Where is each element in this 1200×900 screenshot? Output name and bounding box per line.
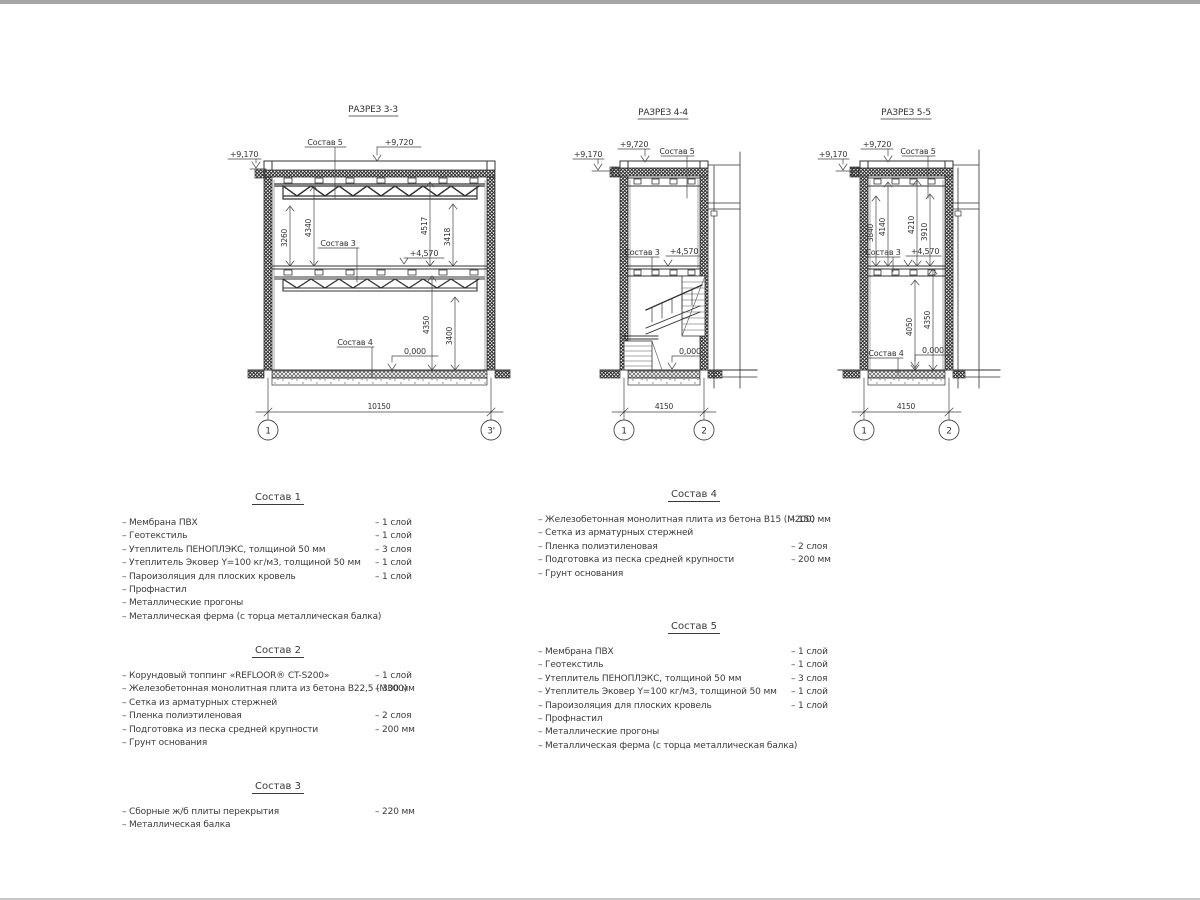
level-label: +9,170 (574, 150, 603, 159)
level-label: 0,000 (922, 346, 944, 355)
spec-item-name: – Железобетонная монолитная плита из бет… (538, 515, 815, 525)
roof-truss-chords (275, 184, 484, 199)
spec-items: – Корундовый топпинг «REFLOOR® CT-S200»–… (122, 671, 434, 751)
spec-item-row: – Металлическая балка (122, 820, 434, 833)
level-label: 0,000 (404, 347, 426, 356)
mid-floor-plates (874, 270, 935, 275)
stair-lower-flight (624, 341, 652, 370)
dim-label: 3260 (280, 228, 289, 247)
mid-truss-diagonals (283, 279, 479, 288)
composition-label: Состав 3 (865, 248, 900, 257)
dim-label: 4050 (905, 317, 914, 336)
spec-item-name: – Утеплитель ПЕНОПЛЭКС, толщиной 50 мм (122, 545, 325, 555)
spec-item-row: – Грунт основания (122, 738, 434, 751)
level-label: +9,720 (385, 138, 414, 147)
spec-item-row: – Профнастил (122, 585, 434, 598)
spec-item-name: – Металлическая ферма (с торца металличе… (122, 612, 381, 622)
spec-item-name: – Корундовый топпинг «REFLOOR® CT-S200» (122, 671, 329, 681)
spec-item-row: – Пленка полиэтиленовая– 2 слоя (122, 711, 434, 724)
roof-purlins (634, 179, 695, 184)
spec-item-name: – Пленка полиэтиленовая (538, 542, 658, 552)
floor-slab-band (272, 371, 487, 378)
spec-item-row: – Сборные ж/б плиты перекрытия– 220 мм (122, 807, 434, 820)
spec-item-row: – Утеплитель Эковер Y=100 кг/м3, толщино… (538, 687, 850, 700)
spec-item-value: – 300 мм (375, 684, 415, 694)
spec-item-row: – Профнастил (538, 714, 850, 727)
spec-item-row: – Пароизоляция для плоских кровель– 1 сл… (538, 701, 850, 714)
span-dim-label: 4150 (655, 402, 674, 411)
spec-item-name: – Железобетонная монолитная плита из бет… (122, 684, 407, 694)
spec-item-name: – Металлические прогоны (122, 598, 243, 608)
spec-block-sostav-5: Состав 5 – Мембрана ПВХ– 1 слой– Геотекс… (538, 621, 850, 754)
spec-items: – Мембрана ПВХ– 1 слой– Геотекстиль– 1 с… (538, 647, 850, 754)
spec-item-row: – Мембрана ПВХ– 1 слой (538, 647, 850, 660)
spec-item-value: – 3 слоя (791, 674, 827, 684)
parapet-lines (860, 161, 953, 168)
spec-item-name: – Грунт основания (538, 569, 623, 579)
spec-item-name: – Профнастил (122, 585, 186, 595)
spec-item-row: – Грунт основания (538, 569, 850, 582)
wall-right (487, 177, 495, 370)
mid-truss-chords (275, 277, 484, 291)
spec-item-name: – Утеплитель ПЕНОПЛЭКС, толщиной 50 мм (538, 674, 741, 684)
dim-label: 4140 (878, 217, 887, 236)
spec-item-value: – 1 слой (375, 558, 412, 568)
spec-item-row: – Утеплитель ПЕНОПЛЭКС, толщиной 50 мм– … (122, 545, 434, 558)
spec-title: Состав 2 (122, 645, 434, 657)
mid-floor-plates (284, 270, 478, 275)
spec-items: – Мембрана ПВХ– 1 слой– Геотекстиль– 1 с… (122, 518, 434, 625)
footing-stub-left (248, 371, 264, 378)
adjacent-structure (708, 152, 740, 388)
composition-label: Состав 4 (337, 338, 372, 347)
spec-item-row: – Мембрана ПВХ– 1 слой (122, 518, 434, 531)
spec-item-name: – Геотекстиль (122, 531, 187, 541)
spec-item-value: – 1 слой (791, 660, 828, 670)
dim-label: 4340 (304, 218, 313, 237)
wall-left (264, 177, 272, 370)
spec-item-name: – Металлическая ферма (с торца металличе… (538, 741, 797, 751)
level-label: +4,570 (670, 247, 699, 256)
adjacent-bracket (955, 211, 961, 216)
roof-band (264, 170, 495, 177)
spec-item-row: – Подготовка из песка средней крупности–… (538, 555, 850, 568)
dim-label: 3400 (445, 326, 454, 345)
footing-stub-left (843, 371, 860, 378)
sections-drawing: РАЗРЕЗ 3-3 3260 4340 4517 3418 (0, 0, 1200, 900)
footing-stub-right (495, 371, 510, 378)
spec-block-sostav-4: Состав 4 – Железобетонная монолитная пли… (538, 489, 850, 582)
composition-label: Состав 5 (900, 147, 935, 156)
spec-item-value: – 1 слой (791, 687, 828, 697)
spec-item-row: – Геотекстиль– 1 слой (122, 531, 434, 544)
spec-item-row: – Металлическая ферма (с торца металличе… (122, 612, 434, 625)
parapet-lines (620, 161, 708, 168)
spec-item-row: – Пароизоляция для плоских кровель– 1 сл… (122, 572, 434, 585)
level-label: +4,570 (410, 249, 439, 258)
wall-left (860, 176, 868, 370)
spec-items: – Железобетонная монолитная плита из бет… (538, 515, 850, 582)
composition-label: Состав 3 (320, 239, 355, 248)
spec-item-value: – 1 слой (375, 518, 412, 528)
spec-item-row: – Пленка полиэтиленовая– 2 слоя (538, 542, 850, 555)
wall-right (945, 176, 953, 370)
spec-item-value: – 2 слоя (375, 711, 411, 721)
spec-item-name: – Профнастил (538, 714, 602, 724)
axis-label: 2 (701, 427, 707, 437)
dim-label: 4517 (420, 216, 429, 235)
spec-item-name: – Подготовка из песка средней крупности (122, 725, 318, 735)
spec-item-value: – 220 мм (375, 807, 415, 817)
level-label: +4,570 (911, 247, 940, 256)
sand-bed-band (628, 378, 700, 385)
spec-item-name: – Сборные ж/б плиты перекрытия (122, 807, 279, 817)
spec-block-sostav-3: Состав 3 – Сборные ж/б плиты перекрытия–… (122, 781, 434, 834)
spec-title: Состав 4 (538, 489, 850, 501)
spec-item-row: – Утеплитель Эковер Y=100 кг/м3, толщино… (122, 558, 434, 571)
spec-item-name: – Пароизоляция для плоских кровель (538, 701, 712, 711)
dim-label: 4350 (422, 315, 431, 334)
spec-item-name: – Сетка из арматурных стержней (122, 698, 277, 708)
spec-item-row: – Корундовый топпинг «REFLOOR® CT-S200»–… (122, 671, 434, 684)
spec-item-row: – Металлические прогоны (122, 598, 434, 611)
spec-item-value: – 1 слой (375, 671, 412, 681)
spec-item-name: – Утеплитель Эковер Y=100 кг/м3, толщино… (122, 558, 361, 568)
spec-item-name: – Геотекстиль (538, 660, 603, 670)
spec-item-value: – 2 слоя (791, 542, 827, 552)
spec-title: Состав 5 (538, 621, 850, 633)
spec-item-row: – Железобетонная монолитная плита из бет… (122, 684, 434, 697)
spec-item-row: – Сетка из арматурных стержней (538, 528, 850, 541)
parapet-lines (264, 161, 495, 170)
spec-item-value: – 1 слой (375, 531, 412, 541)
dim-label: 4350 (923, 310, 932, 329)
dim-label: 3840 (866, 223, 875, 242)
spec-items: – Сборные ж/б плиты перекрытия– 220 мм– … (122, 807, 434, 834)
adjacent-structure (953, 150, 979, 388)
spec-item-value: – 200 мм (375, 725, 415, 735)
sand-bed-band (868, 378, 945, 385)
axis-label: 1 (621, 427, 627, 437)
axis-label: 1 (265, 427, 271, 437)
composition-label: Состав 4 (868, 349, 903, 358)
spec-item-value: – 1 слой (791, 701, 828, 711)
spec-item-value: – 3 слоя (375, 545, 411, 555)
section-3-3: РАЗРЕЗ 3-3 3260 4340 4517 3418 (228, 105, 510, 440)
axis-label: 1 (861, 427, 867, 437)
section-5-5: РАЗРЕЗ 5-5 3840 4140 4210 3910 4050 4350 (818, 108, 1000, 440)
section-4-4: РАЗРЕЗ 4-4 +9,170 +9, (573, 108, 757, 440)
level-label: 0,000 (679, 347, 701, 356)
dim-label: 4210 (907, 215, 916, 234)
footing-stub-right (953, 371, 965, 378)
spec-item-name: – Утеплитель Эковер Y=100 кг/м3, толщино… (538, 687, 777, 697)
footing-stub-right (708, 371, 722, 378)
level-label: +9,170 (819, 150, 848, 159)
spec-item-value: – 1 слой (791, 647, 828, 657)
mid-floor-slab-lines (272, 266, 487, 269)
dim-label: 3418 (443, 227, 452, 246)
footing-stub-left (600, 371, 620, 378)
spec-title: Состав 3 (122, 781, 434, 793)
sand-bed-band (272, 378, 487, 385)
axis-label: 2 (946, 427, 952, 437)
spec-item-row: – Подготовка из песка средней крупности–… (122, 725, 434, 738)
spec-block-sostav-2: Состав 2 – Корундовый топпинг «REFLOOR® … (122, 645, 434, 751)
roof-purlins (284, 178, 478, 183)
spec-block-sostav-1: Состав 1 – Мембрана ПВХ– 1 слой– Геотекс… (122, 492, 434, 625)
spec-item-name: – Металлические прогоны (538, 727, 659, 737)
spec-item-name: – Грунт основания (122, 738, 207, 748)
drawing-sheet: РАЗРЕЗ 3-3 3260 4340 4517 3418 (0, 0, 1200, 900)
spec-item-name: – Мембрана ПВХ (538, 647, 614, 657)
floor-slab-band (868, 371, 945, 378)
spec-item-name: – Металлическая балка (122, 820, 230, 830)
spec-item-value: – 200 мм (791, 555, 831, 565)
section-title: РАЗРЕЗ 5-5 (881, 108, 931, 118)
spec-item-row: – Геотекстиль– 1 слой (538, 660, 850, 673)
roof-band (612, 168, 708, 176)
spec-item-name: – Мембрана ПВХ (122, 518, 198, 528)
level-label: +9,170 (230, 150, 259, 159)
span-dim-label: 10150 (368, 402, 391, 411)
composition-label: Состав 3 (624, 248, 659, 257)
span-dim-label: 4150 (897, 402, 916, 411)
spec-item-row: – Сетка из арматурных стержней (122, 698, 434, 711)
section-title: РАЗРЕЗ 4-4 (638, 108, 688, 118)
roof-band (852, 168, 953, 176)
composition-label: Состав 5 (307, 138, 342, 147)
axis-label: 3' (487, 427, 495, 437)
spec-item-row: – Металлическая ферма (с торца металличе… (538, 741, 850, 754)
adjacent-bracket (711, 211, 717, 216)
dim-label: 3910 (920, 222, 929, 241)
spec-item-name: – Сетка из арматурных стержней (538, 528, 693, 538)
spec-item-value: – 1 слой (375, 572, 412, 582)
spec-title: Состав 1 (122, 492, 434, 504)
spec-item-name: – Подготовка из песка средней крупности (538, 555, 734, 565)
level-label: +9,720 (620, 140, 649, 149)
spec-item-row: – Железобетонная монолитная плита из бет… (538, 515, 850, 528)
mid-floor-plates (634, 270, 695, 275)
roof-purlins (874, 179, 935, 184)
roof-cornice-cap (255, 169, 265, 178)
spec-item-value: – 150 мм (791, 515, 831, 525)
wall-right (700, 176, 708, 370)
spec-item-row: – Металлические прогоны (538, 727, 850, 740)
spec-item-row: – Утеплитель ПЕНОПЛЭКС, толщиной 50 мм– … (538, 674, 850, 687)
spec-item-name: – Пароизоляция для плоских кровель (122, 572, 296, 582)
composition-label: Состав 5 (659, 147, 694, 156)
spec-item-name: – Пленка полиэтиленовая (122, 711, 242, 721)
floor-slab-band (628, 371, 700, 378)
section-title: РАЗРЕЗ 3-3 (348, 105, 398, 115)
level-label: +9,720 (863, 140, 892, 149)
